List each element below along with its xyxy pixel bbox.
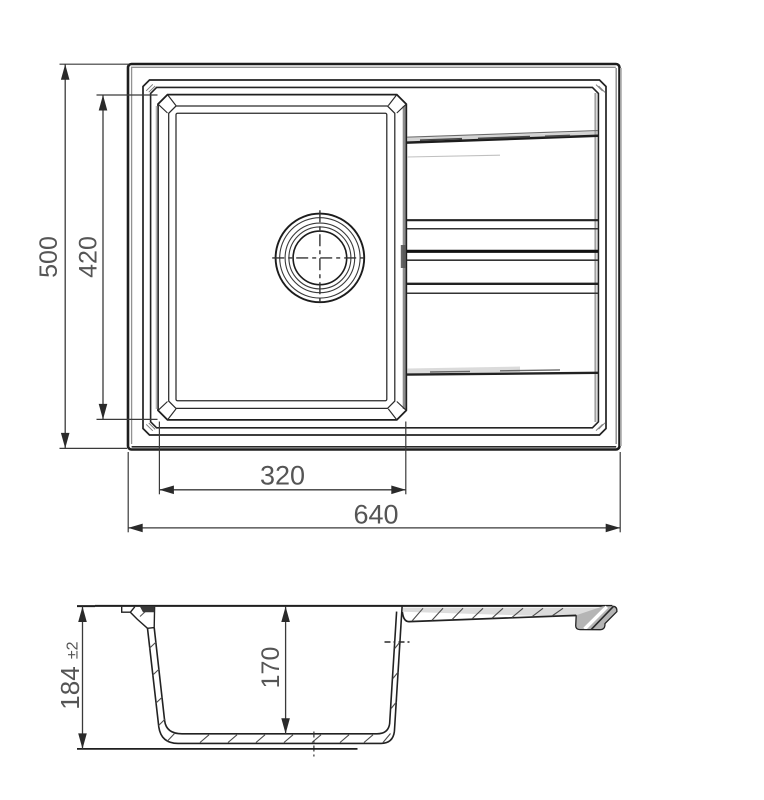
svg-text:320: 320 <box>260 460 305 490</box>
svg-text:170: 170 <box>257 647 285 689</box>
svg-text:500: 500 <box>35 236 63 278</box>
svg-text:420: 420 <box>74 236 102 278</box>
svg-text:184: 184 <box>55 666 85 709</box>
svg-text:±2: ±2 <box>65 641 82 659</box>
svg-text:640: 640 <box>353 499 398 529</box>
